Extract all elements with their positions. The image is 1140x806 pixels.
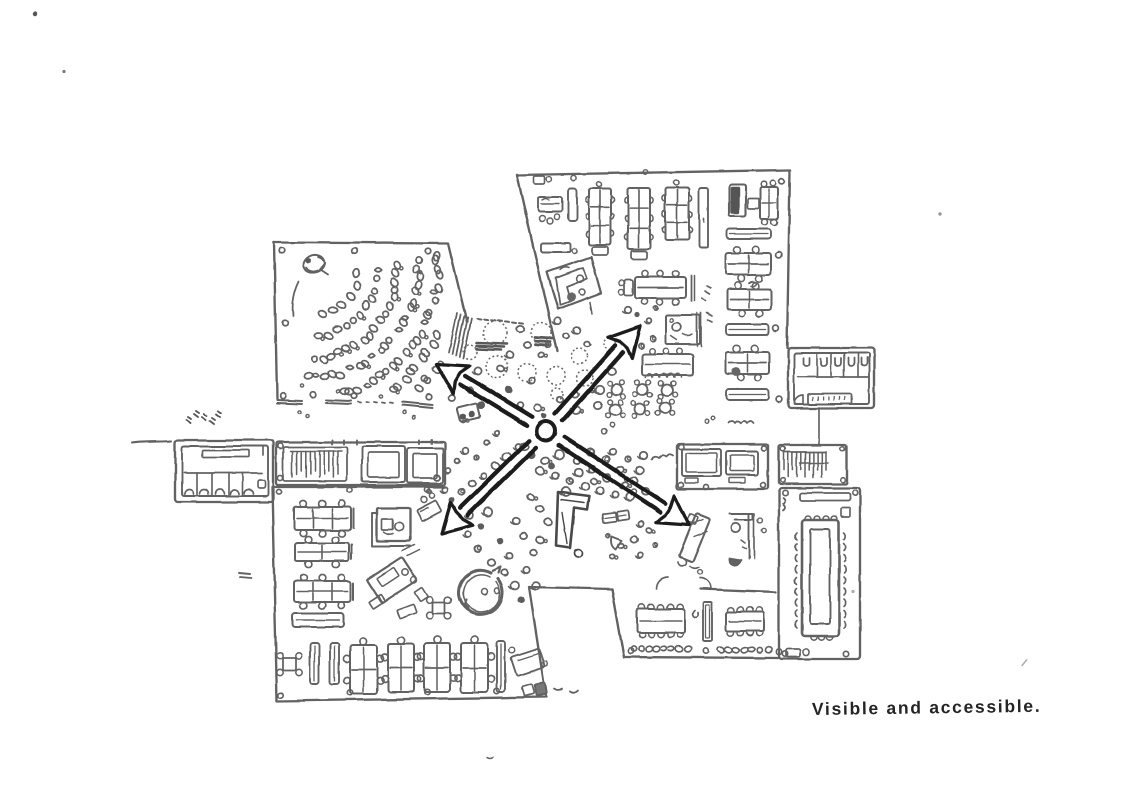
svg-text:Visible and accessible.: Visible and accessible. bbox=[812, 696, 1042, 719]
